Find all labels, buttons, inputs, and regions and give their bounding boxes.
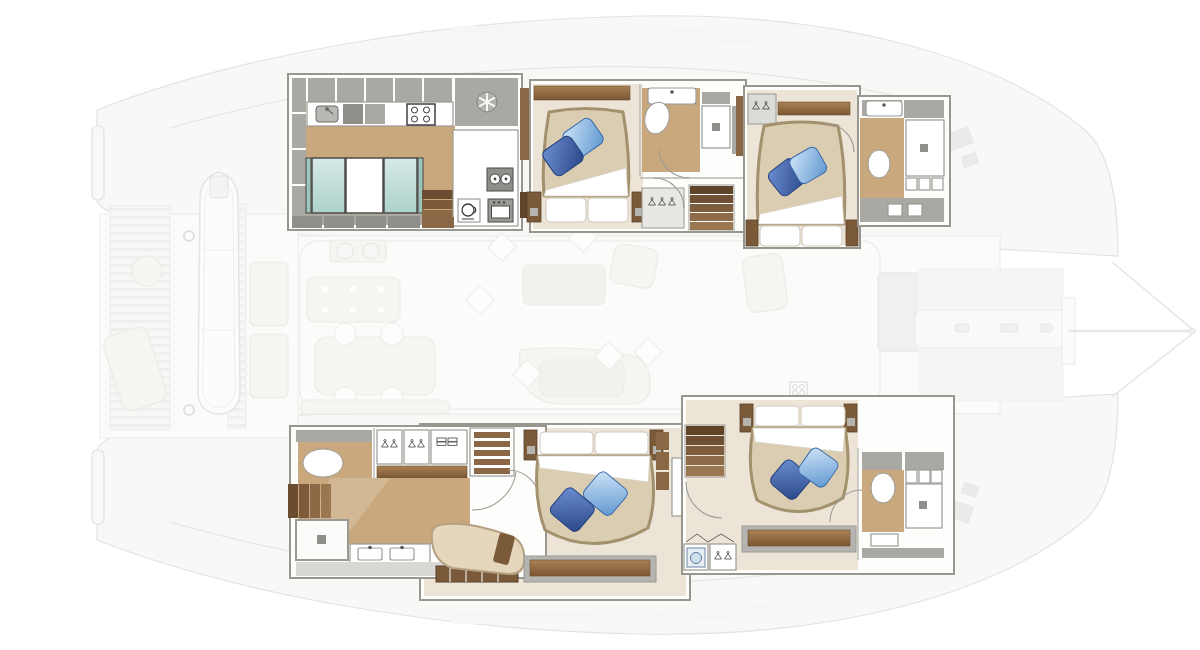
freezer-teal-drawers xyxy=(306,158,423,225)
chair xyxy=(381,323,403,345)
kitchen-sink-icon xyxy=(316,106,338,122)
nightstand xyxy=(846,220,858,246)
dishwasher-icon xyxy=(487,168,513,191)
stove-grid-icon xyxy=(790,382,807,397)
dining-table xyxy=(315,337,435,395)
sunpad-1 xyxy=(250,262,288,326)
shower xyxy=(906,484,942,528)
companionway-stairs xyxy=(685,425,725,477)
hanging-locker xyxy=(710,544,736,570)
salon-seat xyxy=(609,242,659,289)
hull-window-top xyxy=(450,26,600,38)
foot-dresser xyxy=(742,526,856,552)
cabin-starboard-fwd xyxy=(744,86,950,248)
double-bed xyxy=(740,404,857,512)
cabin-port-fwd xyxy=(682,396,954,574)
oven-icon xyxy=(488,199,513,222)
hanging-locker xyxy=(642,188,684,228)
floor-plan-canvas xyxy=(0,0,1200,650)
nightstand xyxy=(527,192,541,222)
round-table xyxy=(132,256,162,286)
owner-dresser xyxy=(524,556,656,582)
hanging-locker xyxy=(748,94,776,124)
owner-bed xyxy=(524,430,663,544)
transom-step-bottom xyxy=(92,450,104,524)
salon-table-fwd xyxy=(523,265,605,305)
armchair xyxy=(741,252,788,313)
washing-machine-icon xyxy=(684,544,708,570)
bridle-lines xyxy=(1112,262,1192,397)
cabin-starboard-mid xyxy=(527,80,746,232)
headboard-shelf xyxy=(778,102,850,115)
owner-suite-port xyxy=(288,424,690,600)
trampoline-net-bottom xyxy=(918,346,1064,402)
bench-sofa xyxy=(300,400,450,414)
toilet xyxy=(868,150,890,178)
chair xyxy=(334,323,356,345)
outboard-motor xyxy=(210,176,228,198)
cooktop-icon xyxy=(407,104,435,125)
double-sink-vanity xyxy=(350,544,430,564)
shower xyxy=(906,120,944,176)
shower xyxy=(296,520,348,560)
headboard-shelf xyxy=(534,86,630,100)
galley-island xyxy=(453,130,518,226)
shower xyxy=(702,106,730,148)
ensuite-bathroom-fwd-stbd xyxy=(858,96,950,226)
snowflake-icon xyxy=(477,92,497,112)
cockpit-table xyxy=(307,277,400,322)
double-bed xyxy=(540,109,628,223)
transom-step-top xyxy=(92,126,104,200)
nightstand xyxy=(746,220,758,246)
wardrobe-shelf xyxy=(377,466,467,478)
toilet xyxy=(871,473,895,503)
book-shelves xyxy=(470,428,514,476)
sunpad-2 xyxy=(250,334,288,398)
galley-starboard-aft xyxy=(288,74,530,230)
toilet xyxy=(303,449,343,477)
wardrobe-hangers xyxy=(377,430,467,478)
coffee-machine-icon xyxy=(458,199,480,222)
hull-window-bottom xyxy=(450,612,600,624)
floor-plan-drawing xyxy=(0,0,1200,650)
vanity xyxy=(871,534,898,546)
companionway-stairs xyxy=(689,185,734,230)
